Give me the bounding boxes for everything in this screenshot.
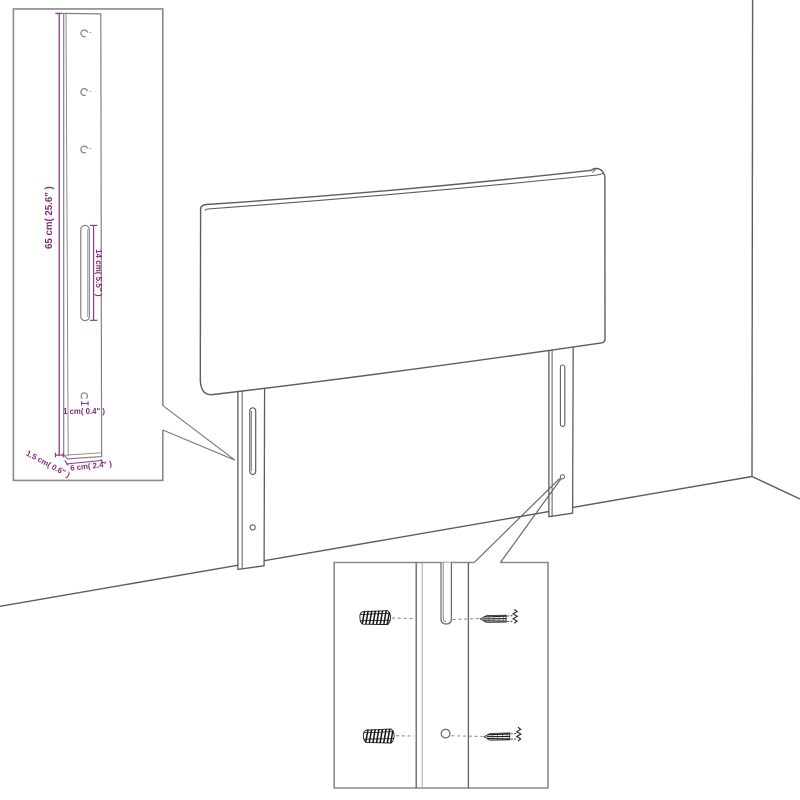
svg-text:1 cm( 0.4" ): 1 cm( 0.4" ) bbox=[63, 407, 105, 416]
svg-text:14 cm( 5.5" ): 14 cm( 5.5" ) bbox=[94, 249, 103, 297]
svg-text:65 cm( 25.6" ): 65 cm( 25.6" ) bbox=[44, 186, 55, 249]
